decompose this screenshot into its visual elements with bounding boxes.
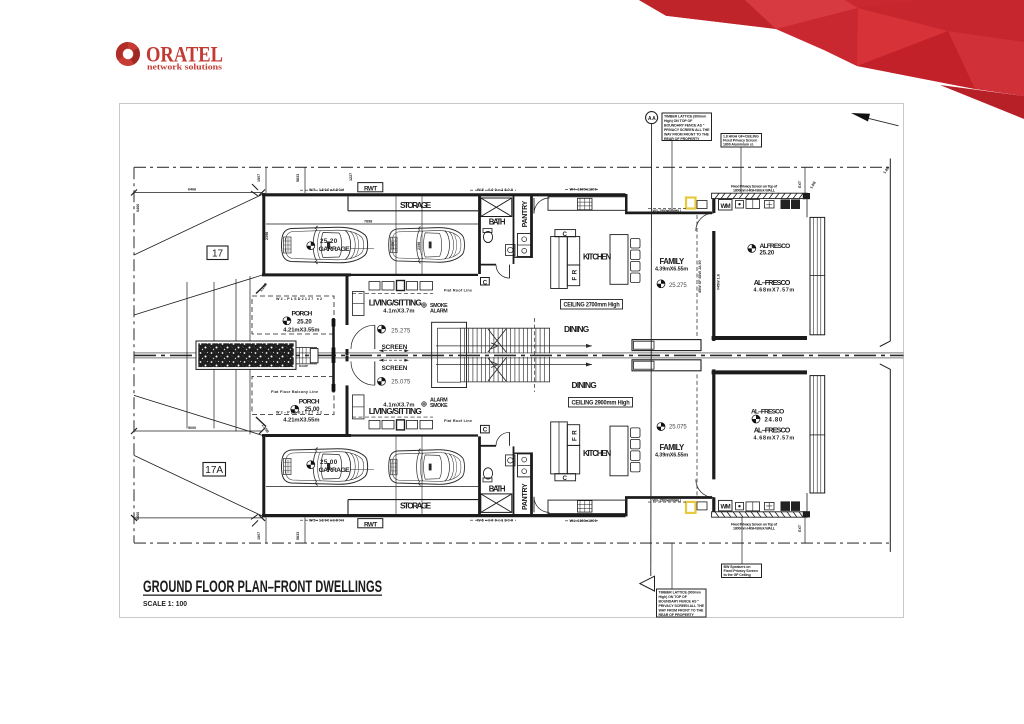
svg-text:#45W 1.8: #45W 1.8 [717,274,721,290]
svg-text:SCREEN: SCREEN [382,365,408,372]
svg-text:SCREEN: SCREEN [382,344,408,351]
svg-text:C: C [483,427,488,434]
svg-text:7898: 7898 [364,220,372,224]
svg-text:BOUNDARY FENCE AS “: BOUNDARY FENCE AS “ [659,600,700,604]
svg-text:5833: 5833 [296,532,300,540]
svg-text:4.1mX3.7m: 4.1mX3.7m [383,308,414,314]
svg-text:GARRAGE: GARRAGE [319,246,351,253]
svg-text:KITCHEN: KITCHEN [583,253,612,262]
svg-text:25.275: 25.275 [391,329,411,335]
svg-text:REAR OF PROPERTY: REAR OF PROPERTY [659,613,695,617]
svg-text:ALARM: ALARM [430,308,448,314]
svg-text:25.20: 25.20 [760,251,775,257]
svg-text:W4–1800x1200: W4–1800x1200 [570,519,597,523]
svg-text:AA: AA [648,116,656,122]
svg-text:C: C [563,475,568,482]
svg-text:45W SF 45W JA 50: 45W SF 45W JA 50 [698,260,702,293]
svg-text:4.21mX3.55m: 4.21mX3.55m [283,328,319,334]
svg-text:PORCH: PORCH [299,399,320,406]
svg-text:TIMBER LATTICE (900mm: TIMBER LATTICE (900mm [664,115,706,119]
svg-text:W3–1500x600(H/L): W3–1500x600(H/L) [653,499,682,503]
svg-text:4.39mX6.55m: 4.39mX6.55m [655,267,688,273]
svg-text:W2–PLSD2127 x2: W2–PLSD2127 x2 [276,297,322,301]
svg-text:RAMP: RAMP [299,364,308,368]
svg-text:W5–1800x600H: W5–1800x600H [309,188,344,192]
svg-text:2398: 2398 [265,232,269,240]
svg-text:GARRAGE: GARRAGE [319,467,351,474]
svg-text:network solutions: network solutions [147,62,223,72]
svg-text:4.39mX6.55m: 4.39mX6.55m [655,453,688,459]
svg-text:25.20: 25.20 [297,319,312,325]
svg-text:STORAGE: STORAGE [400,200,432,210]
svg-text:24.80: 24.80 [765,418,783,424]
svg-text:CEILING 2900mm High: CEILING 2900mm High [572,401,631,407]
svg-text:W2–PLSD2127 x2: W2–PLSD2127 x2 [276,411,322,415]
svg-text:BATH: BATH [489,218,506,227]
svg-text:5833: 5833 [296,174,300,182]
svg-text:RWT: RWT [364,522,377,529]
svg-text:1227: 1227 [349,173,353,181]
svg-text:REAR OF PROPERTY: REAR OF PROPERTY [664,137,700,141]
svg-text:PRIVACY SCREEN ALL THE: PRIVACY SCREEN ALL THE [664,128,710,132]
svg-text:BOUNDARY FENCE AS “: BOUNDARY FENCE AS “ [664,124,705,128]
svg-text:25.075: 25.075 [669,425,687,431]
svg-text:4.68mX7.57m: 4.68mX7.57m [754,287,795,293]
svg-text:SCALE 1: 100: SCALE 1: 100 [143,599,187,608]
svg-text:6466: 6466 [136,204,140,212]
svg-text:17A: 17A [205,465,223,476]
svg-text:25.275: 25.275 [669,283,687,289]
svg-text:PANTRY: PANTRY [522,483,529,510]
svg-text:FAMILY: FAMILY [660,257,685,266]
svg-text:Flat Roof Line: Flat Roof Line [444,289,472,293]
svg-text:25.075: 25.075 [391,380,411,386]
svg-text:5000: 5000 [188,426,196,430]
svg-text:High) ON TOP OF: High) ON TOP OF [659,595,688,599]
svg-text:C: C [483,280,488,287]
svg-text:W4–1800x1200: W4–1800x1200 [570,188,597,192]
svg-text:CEILING 2700mm High: CEILING 2700mm High [564,303,620,309]
svg-text:25.20: 25.20 [320,238,338,245]
svg-text:4.21mX3.55m: 4.21mX3.55m [283,418,319,424]
svg-text:PORCH: PORCH [292,311,313,318]
svg-text:WM: WM [721,203,731,210]
svg-text:4.1mX3.7m: 4.1mX3.7m [383,402,414,408]
svg-text:KITCHEN: KITCHEN [583,449,612,458]
svg-text:Flat Roof Line: Flat Roof Line [444,419,472,423]
svg-text:WM: WM [721,504,731,511]
svg-text:6466: 6466 [188,188,196,192]
svg-text:GROUND FLOOR PLAN–FRONT DWELLI: GROUND FLOOR PLAN–FRONT DWELLINGS [143,578,382,596]
svg-text:1507: 1507 [257,532,261,540]
svg-text:1108: 1108 [391,242,395,250]
svg-text:WAY FROM FRONT TO THE: WAY FROM FRONT TO THE [664,133,709,137]
svg-text:DINING: DINING [564,324,589,334]
svg-text:4.68mX7.57m: 4.68mX7.57m [754,436,795,442]
svg-text:1800mm HIGH Brick WALL: 1800mm HIGH Brick WALL [733,189,776,193]
svg-text:ALFRESCO: ALFRESCO [760,243,791,250]
svg-text:W5–1800x600H: W5–1800x600H [309,519,344,523]
svg-text:PRIVACY SCREEN ALL THE: PRIVACY SCREEN ALL THE [659,604,705,608]
svg-text:2398: 2398 [417,242,421,250]
svg-text:1800mm HIGH Brick WALL: 1800mm HIGH Brick WALL [733,527,776,531]
svg-text:1800 Aluminium sl.: 1800 Aluminium sl. [723,143,754,147]
svg-text:17: 17 [212,248,224,259]
svg-text:to the GF Ceiling: to the GF Ceiling [724,573,751,577]
svg-text:6466: 6466 [136,512,140,520]
svg-text:AL–FRESCO: AL–FRESCO [751,409,784,416]
svg-text:C: C [563,231,568,238]
svg-text:SMOKE: SMOKE [430,403,448,409]
svg-text:WAY FROM FRONT TO THE: WAY FROM FRONT TO THE [659,609,704,613]
svg-text:LIVING/SITTING: LIVING/SITTING [369,297,422,307]
svg-text:FR: FR [572,430,579,441]
svg-text:W3–1500x600(H/L): W3–1500x600(H/L) [653,209,682,213]
svg-text:PANTRY: PANTRY [522,200,529,227]
svg-text:AL–FRESCO: AL–FRESCO [754,426,791,435]
svg-text:EXT: EXT [798,524,802,532]
svg-text:High) ON TOP OF: High) ON TOP OF [664,119,693,123]
svg-text:W5–600x1800: W5–600x1800 [477,519,513,523]
svg-text:TIMBER LATTICE (900mm: TIMBER LATTICE (900mm [659,591,701,595]
svg-text:DINING: DINING [572,380,597,390]
svg-text:25.00: 25.00 [320,459,338,466]
svg-text:W5–600x1800: W5–600x1800 [477,188,513,192]
svg-text:BATH: BATH [489,485,506,494]
svg-text:STORAGE: STORAGE [400,501,432,511]
svg-text:FR: FR [572,269,579,280]
svg-text:AL–FRESCO: AL–FRESCO [754,278,791,287]
svg-text:EXT: EXT [798,180,802,188]
svg-text:1507: 1507 [257,174,261,182]
svg-text:Flat Floor Balcony Line: Flat Floor Balcony Line [271,390,318,394]
svg-text:FAMILY: FAMILY [660,443,685,452]
svg-text:RWT: RWT [364,185,377,192]
